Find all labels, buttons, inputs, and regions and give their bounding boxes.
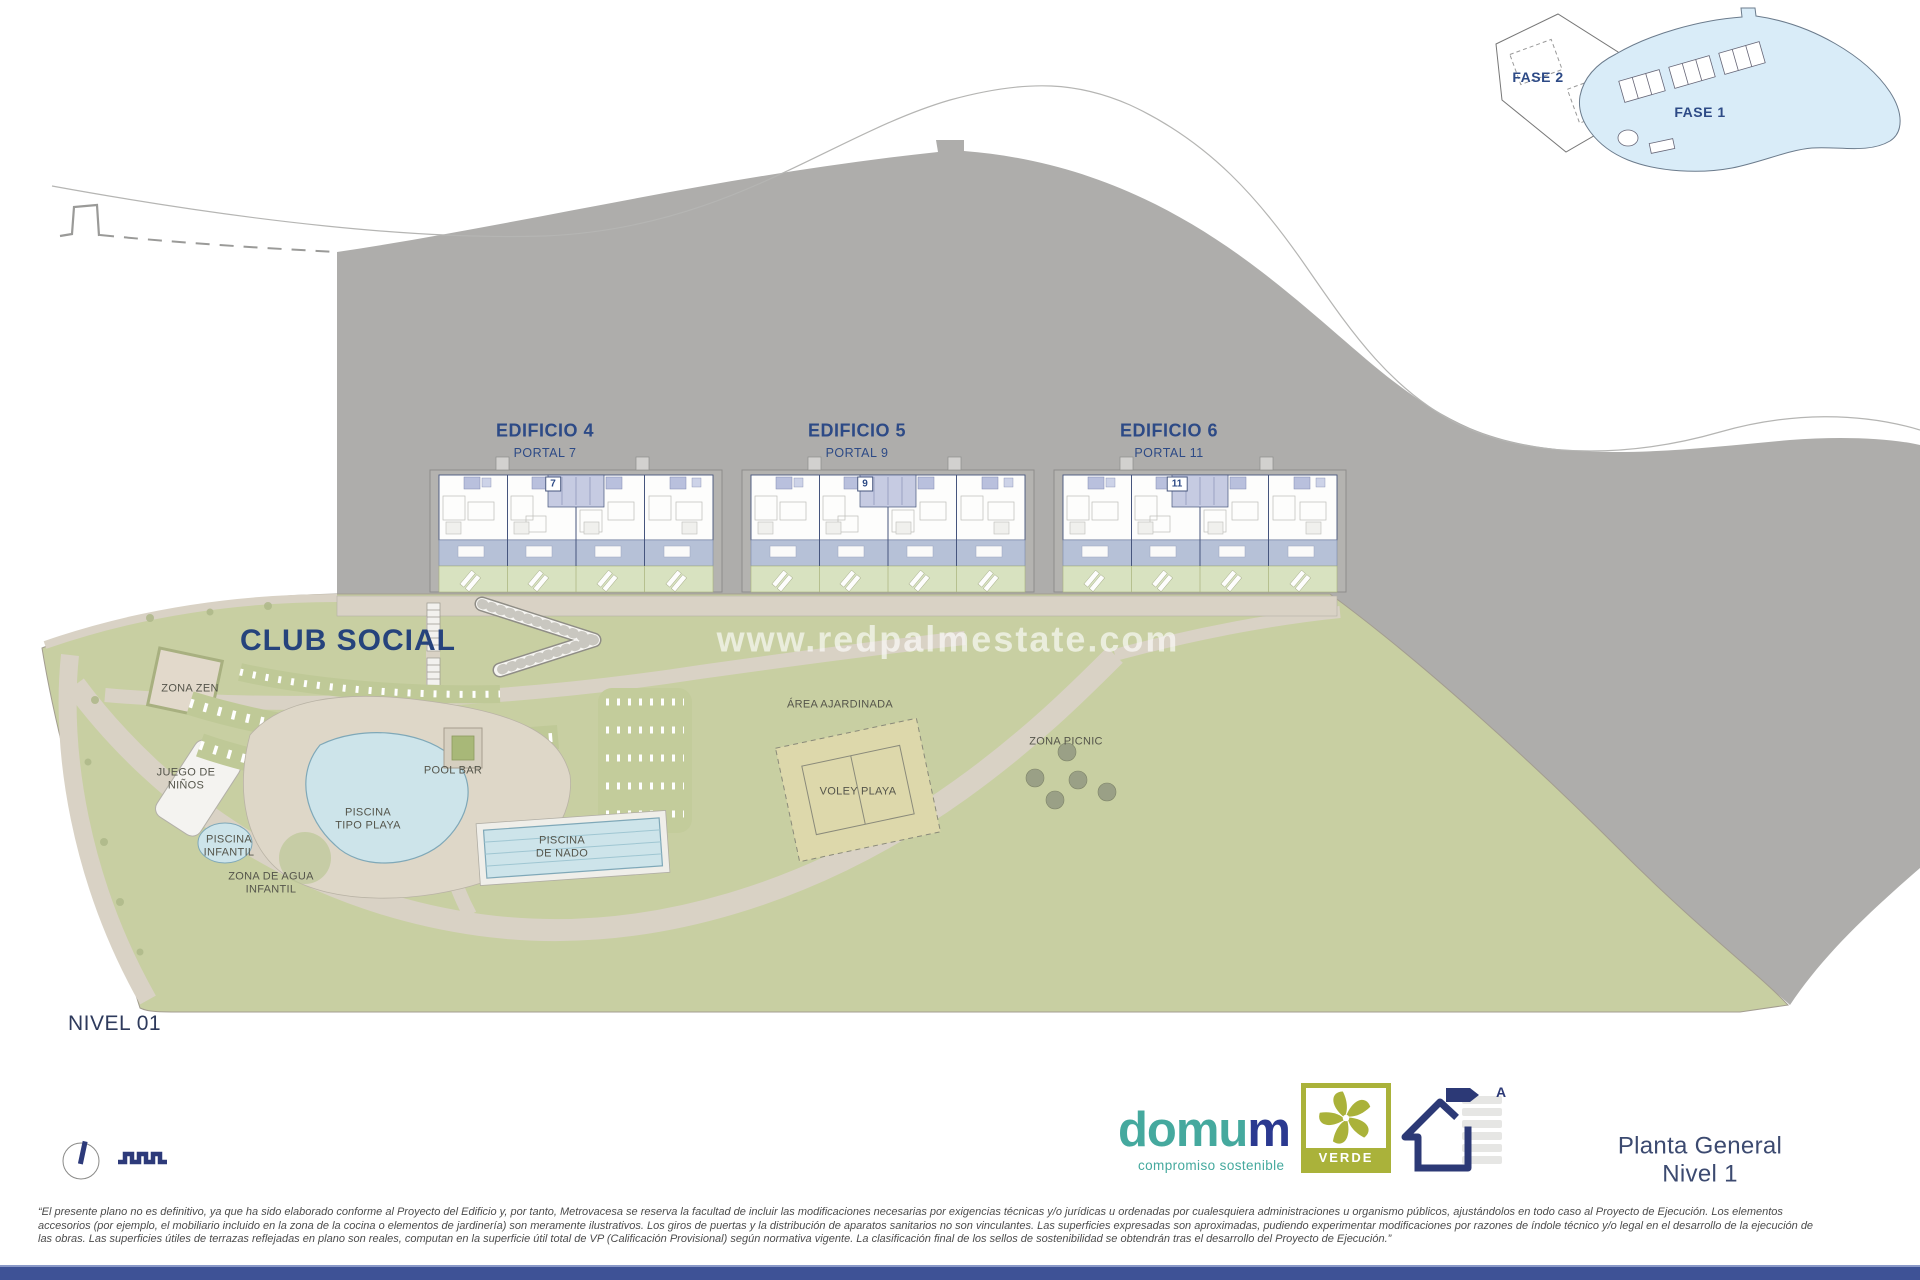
- verde-badge-label: VERDE: [1306, 1148, 1386, 1168]
- brand-wordmark: domum: [1118, 1106, 1290, 1155]
- legal-disclaimer-line3: las obras. Las superficies útiles de ter…: [38, 1233, 1892, 1247]
- zona-picnic-label: ZONA PICNIC: [1029, 736, 1103, 749]
- inset-map: [1496, 8, 1900, 171]
- inset-fase2-label: FASE 2: [1512, 69, 1563, 85]
- footer-bar: [0, 1265, 1920, 1280]
- building-6-name: EDIFICIO 6: [1120, 421, 1218, 442]
- building-4-name: EDIFICIO 4: [496, 421, 594, 442]
- legal-disclaimer-line1: “El presente plano no es definitivo, ya …: [38, 1206, 1892, 1220]
- area-ajardinada-label: ÁREA AJARDINADA: [787, 699, 893, 712]
- pool-bar-structure: [444, 728, 482, 768]
- lounger-lawn-right: [598, 688, 692, 833]
- voley-playa-label: VOLEY PLAYA: [820, 786, 897, 799]
- legal-disclaimer: “El presente plano no es definitivo, ya …: [38, 1206, 1892, 1247]
- north-compass-icon: [58, 1136, 104, 1184]
- scale-bar-icon: [116, 1146, 172, 1168]
- energy-house-icon: [1392, 1080, 1512, 1180]
- juego-ninos-label: JUEGO DE NIÑOS: [157, 766, 216, 791]
- building-4-footprint: [430, 457, 722, 592]
- building-6-footprint: [1054, 457, 1346, 592]
- piscina-infantil-label: PISCINA INFANTIL: [204, 833, 255, 858]
- zona-agua-infantil-label: ZONA DE AGUA INFANTIL: [228, 870, 314, 895]
- building-4-unit-number: 7: [545, 477, 561, 492]
- building-5-portal: PORTAL 9: [826, 446, 889, 460]
- pool-bar-label: POOL BAR: [424, 765, 482, 778]
- brand-wordmark-main: domu: [1118, 1103, 1247, 1157]
- site-plan-page: FASE 2 FASE 1 EDIFICIO 4 PORTAL 7 7 EDIF…: [0, 0, 1920, 1280]
- level-label: NIVEL 01: [68, 1012, 161, 1036]
- piscina-tipo-playa-label: PISCINA TIPO PLAYA: [335, 806, 401, 831]
- building-6-unit-number: 11: [1167, 477, 1188, 492]
- energy-rating-label: A: [1496, 1084, 1506, 1100]
- inset-fase1-label: FASE 1: [1674, 104, 1725, 120]
- sheet-title: Planta General Nivel 1: [1590, 1132, 1810, 1187]
- building-5-unit-number: 9: [857, 477, 873, 492]
- zona-zen-label: ZONA ZEN: [161, 683, 218, 696]
- verde-leaf-icon: [1306, 1088, 1386, 1148]
- building-6-portal: PORTAL 11: [1134, 446, 1203, 460]
- watermark: www.redpalmestate.com: [717, 618, 1180, 659]
- building-4-portal: PORTAL 7: [514, 446, 577, 460]
- brand-logo: domum compromiso sostenible: [1118, 1106, 1290, 1173]
- verde-badge: VERDE: [1301, 1083, 1391, 1173]
- legal-disclaimer-line2: accesorios (por ejemplo, el mobiliario i…: [38, 1220, 1892, 1234]
- piscina-de-nado-label: PISCINA DE NADO: [536, 834, 588, 859]
- building-5-footprint: [742, 457, 1034, 592]
- brand-tagline: compromiso sostenible: [1138, 1158, 1290, 1173]
- brand-wordmark-accent: m: [1247, 1103, 1290, 1157]
- building-5-name: EDIFICIO 5: [808, 421, 906, 442]
- club-social-label: CLUB SOCIAL: [240, 624, 456, 659]
